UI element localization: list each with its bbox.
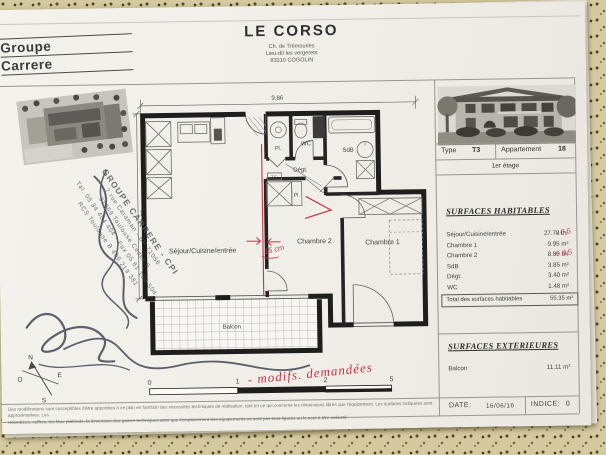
surface-row-value: 3.85 m² bbox=[548, 261, 569, 268]
surfaces-total-box: Total des surfaces habitables 55.35 m² bbox=[441, 292, 578, 307]
entry-threshold-hatch bbox=[246, 117, 266, 136]
apartment-label: Appartement bbox=[501, 146, 541, 154]
surface-row: WC 1.48 m² bbox=[447, 282, 573, 291]
surface-row: SdB 3.85 m² bbox=[447, 261, 573, 270]
surface-row-label: Chambre 1 bbox=[446, 241, 477, 248]
project-title: LE CORSO bbox=[174, 21, 408, 41]
plan-width-dimension: 9.86 bbox=[271, 95, 284, 102]
date-indice-divider bbox=[525, 396, 526, 414]
bed-icon bbox=[389, 220, 423, 274]
surface-row-label: SdB bbox=[447, 263, 459, 270]
surface-row: Balcon 11.11 m² bbox=[448, 363, 574, 372]
surfaces-total-label: Total des surfaces habitables bbox=[446, 296, 522, 303]
floorplan-sheet: Groupe Carrere LE CORSO Ch. de Trémourie… bbox=[0, 1, 591, 434]
toilet-icon bbox=[295, 119, 307, 138]
surface-row-label: Séjour/Cuisine/entrée bbox=[446, 230, 506, 238]
surface-row-label: Dégt. bbox=[447, 273, 462, 280]
info-table-divider bbox=[495, 143, 496, 159]
building-rendering-image bbox=[437, 84, 576, 145]
room-label-sdb: SdB bbox=[342, 148, 353, 154]
surfaces-exterieures-title: SURFACES EXTERIEURES bbox=[448, 340, 558, 352]
type-value: T3 bbox=[472, 147, 480, 154]
duct-block bbox=[313, 116, 325, 138]
indice-label: INDICE: bbox=[531, 401, 560, 408]
surface-row-value: 3.40 m² bbox=[548, 272, 569, 279]
surface-row: Dégt. 3.40 m² bbox=[447, 271, 573, 280]
photo-of-floorplan-document: { "logo": {"line1": "Groupe", "line2": "… bbox=[0, 0, 606, 455]
surface-row: Séjour/Cuisine/entrée 27.78 m² bbox=[446, 229, 572, 238]
wardrobe-icon bbox=[359, 198, 422, 215]
company-logo: Groupe Carrere bbox=[0, 32, 133, 77]
room-label-chambre1: Chambre 1 bbox=[365, 239, 400, 247]
chambre1-furniture bbox=[359, 198, 423, 275]
kitchen-column-unit bbox=[214, 129, 222, 141]
bathtub-icon bbox=[329, 116, 375, 133]
washing-machine-icon bbox=[270, 122, 286, 138]
date-value: 16/06/16 bbox=[486, 402, 515, 409]
date-label: DATE: bbox=[449, 402, 472, 409]
room-label-wc: WC bbox=[301, 141, 312, 147]
disclaimer-text: Des modifications sont susceptibles d'êt… bbox=[8, 401, 436, 427]
info-table-rule-bottom bbox=[435, 172, 575, 175]
balcon-value: 11.11 m² bbox=[547, 364, 571, 371]
surfaces-habitables-title: SURFACES HABITABLES bbox=[446, 205, 550, 217]
pen-scribbles bbox=[6, 155, 340, 400]
surface-row-label: Chambre 2 bbox=[447, 252, 478, 259]
ext-section-rule bbox=[438, 331, 578, 334]
apartment-number: 18 bbox=[558, 146, 566, 153]
title-block: LE CORSO Ch. de Trémouries Lieu-dit les … bbox=[174, 21, 409, 66]
surface-row: Chambre 1 9.95 m² bbox=[446, 240, 572, 249]
scale-tick-5: 5 bbox=[390, 376, 394, 383]
type-label: Type bbox=[441, 147, 456, 154]
indice-value: 0 bbox=[566, 401, 571, 408]
floor-label: 1er étage bbox=[435, 161, 575, 170]
laundry-closet bbox=[270, 122, 286, 138]
surfaces-total-value: 55.35 m² bbox=[550, 295, 573, 301]
info-table-rule-mid bbox=[435, 157, 575, 160]
balcon-label: Balcon bbox=[448, 365, 467, 372]
surface-row-value: 1.48 m² bbox=[548, 282, 569, 289]
room-label-pl1: Pl. bbox=[275, 146, 282, 152]
surface-row-label: WC bbox=[447, 284, 457, 291]
